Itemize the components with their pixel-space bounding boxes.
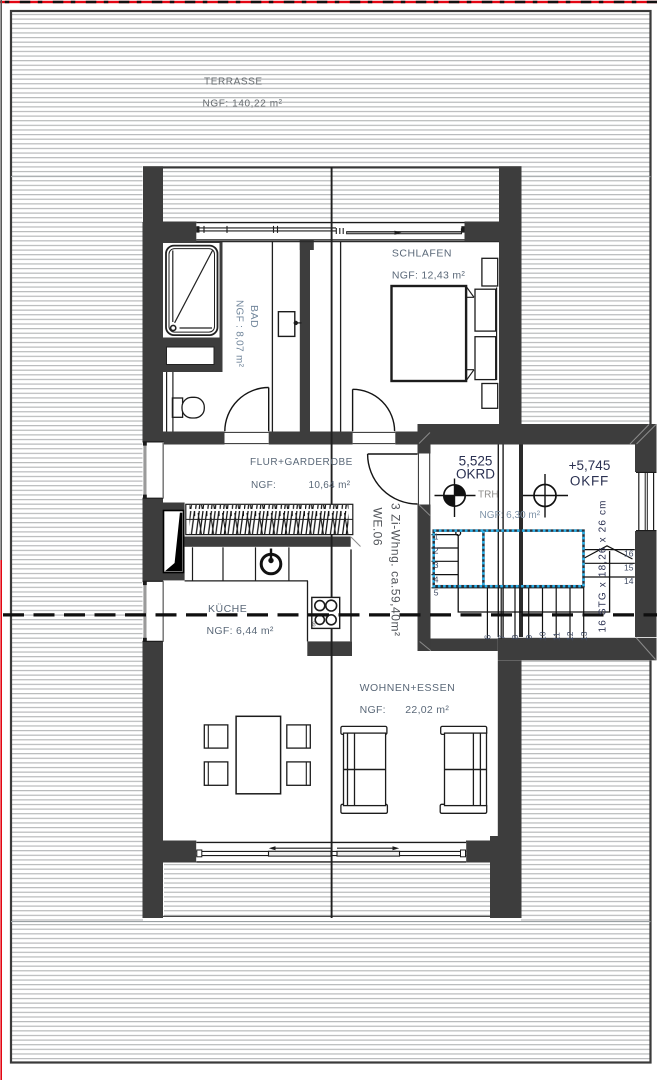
svg-text:1: 1 [434,532,439,542]
svg-text:60: 60 [311,621,316,627]
svg-text:FLUR+GARDEROBE: FLUR+GARDEROBE [250,457,353,468]
svg-text:+5,745: +5,745 [569,458,611,473]
svg-text:13: 13 [579,631,589,641]
svg-text:22,02 m²: 22,02 m² [405,704,449,716]
svg-text:12: 12 [565,631,575,641]
svg-text:NGF: 12,43 m²: NGF: 12,43 m² [392,270,466,282]
svg-text:4: 4 [434,575,439,585]
svg-text:5: 5 [434,588,439,598]
svg-text:2: 2 [434,546,439,556]
svg-text:OKRD: OKRD [456,467,495,482]
svg-text:TRH: TRH [478,490,499,501]
svg-text:11: 11 [551,632,561,641]
svg-text:8: 8 [510,635,520,640]
svg-text:NGF: 6,30 m²: NGF: 6,30 m² [480,510,541,521]
svg-text:15: 15 [624,563,634,573]
svg-text:10,64 m²: 10,64 m² [309,480,351,491]
svg-text:NGF: 140,22 m²: NGF: 140,22 m² [203,99,283,110]
svg-text:16 STG x 18,26 x 26 cm: 16 STG x 18,26 x 26 cm [598,499,609,632]
svg-text:NGF:: NGF: [251,480,276,491]
svg-text:NGF : 8,07 m²: NGF : 8,07 m² [234,300,245,368]
svg-text:7: 7 [496,635,506,640]
svg-text:OKFF: OKFF [570,474,609,489]
svg-text:WE.06: WE.06 [371,508,385,547]
svg-text:NGF:: NGF: [360,704,386,716]
svg-text:BAD: BAD [248,305,260,328]
svg-text:NGF: 6,44 m²: NGF: 6,44 m² [207,625,274,637]
svg-text:KÜCHE: KÜCHE [208,603,247,615]
svg-text:9: 9 [524,635,534,640]
svg-text:WOHNEN+ESSEN: WOHNEN+ESSEN [360,682,456,694]
svg-text:16: 16 [624,549,634,559]
svg-text:3 Zi-Whng. ca.59,40m²: 3 Zi-Whng. ca.59,40m² [389,503,403,637]
svg-text:3: 3 [434,560,439,570]
svg-text:SCHLAFEN: SCHLAFEN [392,248,452,260]
svg-text:6: 6 [483,635,493,640]
svg-text:14: 14 [624,576,634,586]
svg-text:TERRASSE: TERRASSE [204,77,263,88]
svg-text:10: 10 [538,631,548,641]
